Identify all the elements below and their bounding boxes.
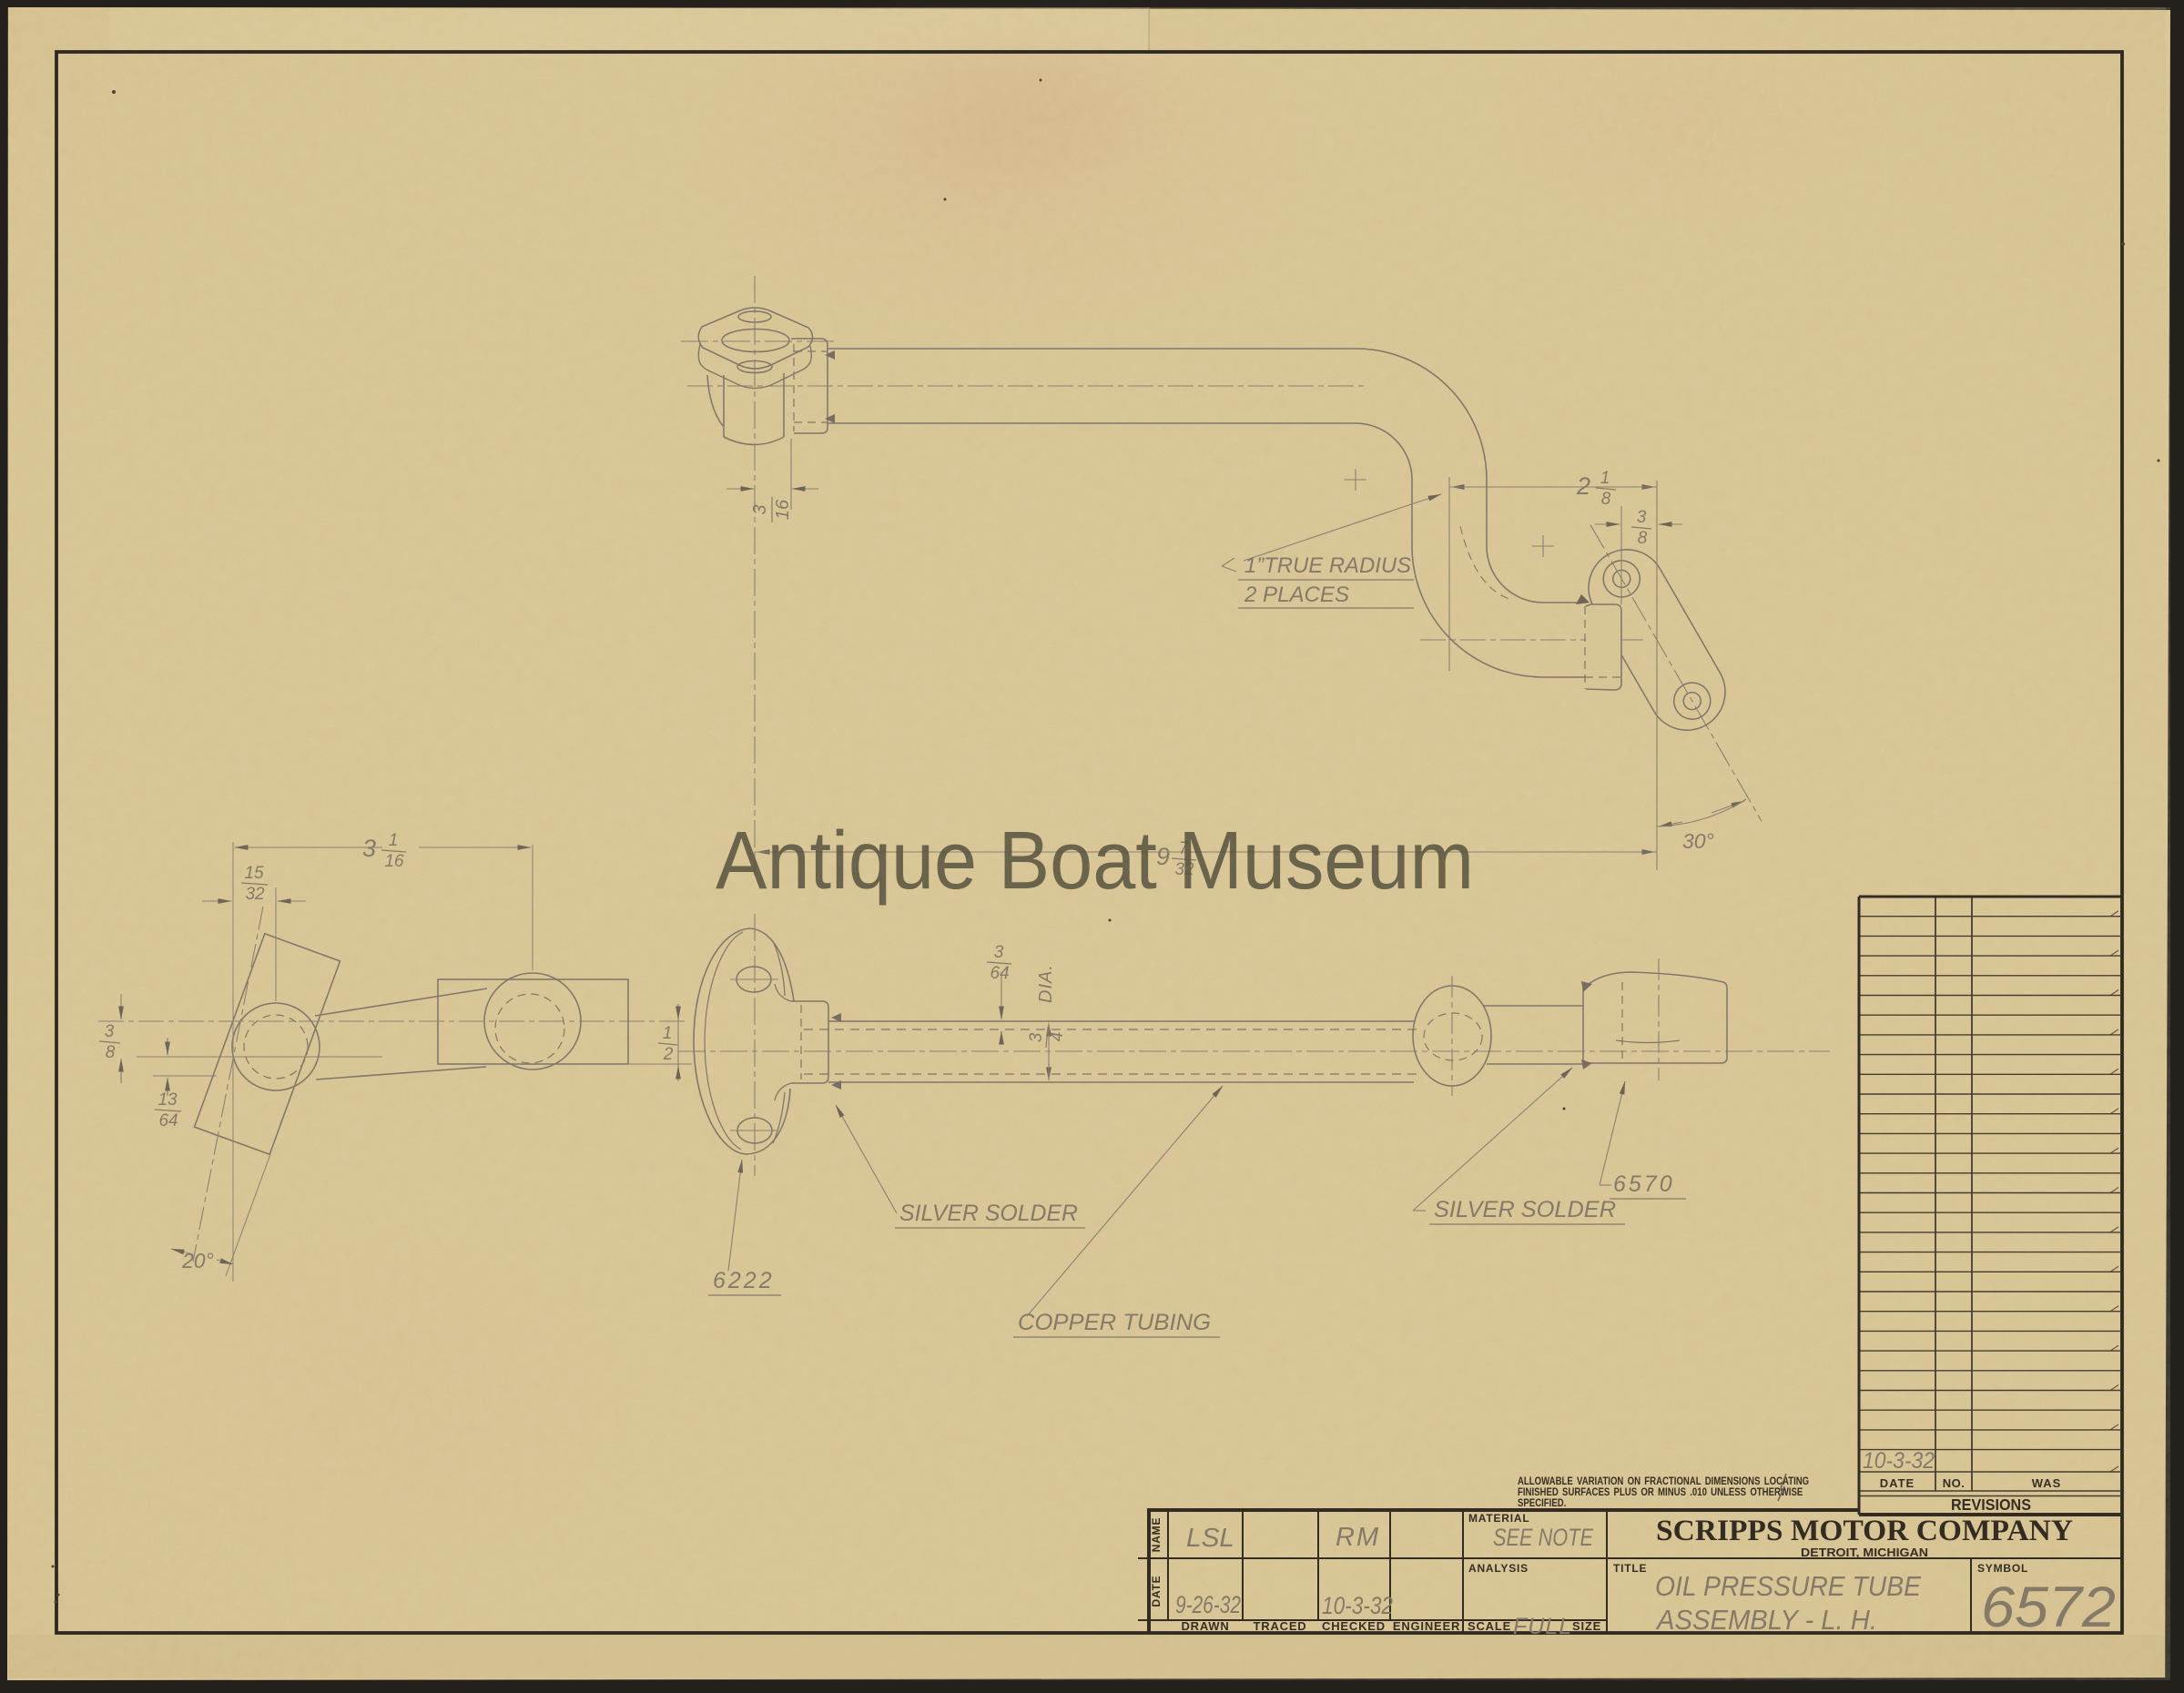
svg-text:DETROIT, MICHIGAN: DETROIT, MICHIGAN: [1801, 1546, 1928, 1559]
svg-text:10-3-32: 10-3-32: [1322, 1592, 1393, 1619]
svg-text:DIA.: DIA.: [1036, 964, 1056, 1003]
svg-text:2 PLACES: 2 PLACES: [1244, 583, 1349, 607]
svg-text:SCALE: SCALE: [1468, 1619, 1511, 1633]
svg-text:OIL PRESSURE TUBE: OIL PRESSURE TUBE: [1655, 1570, 1921, 1602]
svg-text:16: 16: [773, 499, 793, 520]
svg-text:LSL: LSL: [1186, 1524, 1234, 1553]
svg-text:DATE: DATE: [1880, 1476, 1915, 1490]
svg-text:9-26-32: 9-26-32: [1175, 1591, 1241, 1618]
svg-text:SPECIFIED.: SPECIFIED.: [1518, 1497, 1566, 1509]
svg-text:64: 64: [158, 1111, 178, 1130]
svg-text:3: 3: [1637, 508, 1647, 527]
svg-text:4: 4: [1048, 1032, 1067, 1042]
svg-text:3: 3: [1027, 1032, 1046, 1042]
svg-text:3: 3: [994, 943, 1004, 962]
svg-text:NAME: NAME: [1150, 1517, 1163, 1553]
svg-text:1: 1: [1600, 469, 1610, 488]
svg-text:FULL: FULL: [1513, 1614, 1572, 1639]
svg-text:8: 8: [106, 1043, 116, 1062]
svg-text:3: 3: [750, 504, 770, 514]
svg-text:15: 15: [244, 864, 264, 883]
svg-text:ASSEMBLY - L. H.: ASSEMBLY - L. H.: [1655, 1604, 1877, 1636]
svg-text:RM: RM: [1336, 1523, 1380, 1552]
svg-text:1: 1: [389, 831, 399, 850]
svg-text:1”TRUE RADIUS: 1”TRUE RADIUS: [1244, 553, 1411, 578]
svg-text:WAS: WAS: [2032, 1476, 2062, 1490]
svg-text:6570: 6570: [1613, 1171, 1675, 1197]
svg-text:SILVER SOLDER: SILVER SOLDER: [1434, 1197, 1616, 1222]
svg-text:16: 16: [384, 852, 404, 871]
svg-text:SEE NOTE: SEE NOTE: [1493, 1524, 1594, 1551]
svg-text:SIZE: SIZE: [1572, 1619, 1601, 1633]
svg-text:30°: 30°: [1682, 829, 1714, 853]
svg-text:1: 1: [663, 1024, 673, 1043]
svg-text:NO.: NO.: [1943, 1476, 1966, 1490]
svg-text:8: 8: [1601, 490, 1611, 509]
svg-text:3: 3: [362, 835, 376, 862]
svg-text:DRAWN: DRAWN: [1181, 1619, 1229, 1633]
svg-text:TRACED: TRACED: [1254, 1619, 1307, 1633]
svg-text:2: 2: [1576, 472, 1590, 500]
svg-text:10-3-32: 10-3-32: [1863, 1448, 1935, 1474]
svg-text:3: 3: [105, 1022, 115, 1041]
svg-text:SILVER SOLDER: SILVER SOLDER: [899, 1201, 1078, 1226]
svg-text:ANALYSIS: ANALYSIS: [1468, 1562, 1529, 1575]
svg-text:6572: 6572: [1981, 1576, 2116, 1639]
svg-text:TITLE: TITLE: [1613, 1562, 1647, 1575]
svg-text:32: 32: [245, 885, 265, 904]
svg-text:SCRIPPS MOTOR COMPANY: SCRIPPS MOTOR COMPANY: [1656, 1515, 2073, 1547]
svg-text:Antique Boat Museum: Antique Boat Museum: [716, 816, 1474, 907]
svg-text:2: 2: [663, 1045, 674, 1064]
svg-text:SYMBOL: SYMBOL: [1977, 1562, 2028, 1575]
svg-text:6222: 6222: [713, 1268, 775, 1293]
svg-text:MATERIAL: MATERIAL: [1468, 1512, 1530, 1525]
svg-text:DATE: DATE: [1150, 1576, 1163, 1607]
svg-text:13: 13: [157, 1090, 178, 1110]
svg-text:CHECKED: CHECKED: [1322, 1619, 1386, 1633]
svg-text:8: 8: [1638, 529, 1648, 548]
svg-text:ENGINEER: ENGINEER: [1393, 1619, 1460, 1633]
svg-text:64: 64: [990, 964, 1009, 983]
svg-text:COPPER TUBING: COPPER TUBING: [1018, 1310, 1211, 1335]
svg-text:20°: 20°: [181, 1249, 214, 1272]
svg-text:REVISIONS: REVISIONS: [1951, 1495, 2031, 1514]
